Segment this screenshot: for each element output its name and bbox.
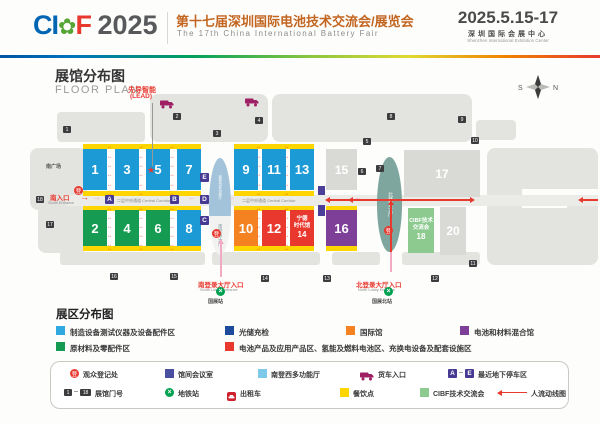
aisle-arrow-icon: ↔	[284, 216, 289, 221]
gate-11: 11	[469, 260, 477, 267]
zone-label: 光储充检	[239, 327, 269, 338]
hall-14-label-line: 14	[298, 230, 307, 240]
hall-1: 1	[83, 149, 107, 190]
hall-2: 2	[83, 210, 107, 246]
svg-text:S: S	[518, 85, 523, 92]
aisle-arrow-icon: ↔	[107, 207, 112, 212]
aisle-arrow-icon: ↔	[139, 183, 144, 188]
zone-label: 国际馆	[360, 327, 383, 338]
aisle-arrow-icon: ↔	[256, 155, 261, 160]
gate-10: 10	[471, 137, 479, 144]
aisle-arrow-icon: ↔	[170, 164, 175, 169]
aisle-arrow-icon: ↔	[256, 183, 261, 188]
flow-arrowhead-left	[578, 197, 583, 203]
gate-12: 12	[431, 275, 439, 282]
lead-pointer-line	[152, 103, 153, 166]
cibf-floorplan-page: CI✿F 2025 第十七届深圳国际电池技术交流会/展览会 The 17th C…	[0, 0, 600, 424]
hall-13: 13	[290, 149, 314, 190]
aisle-arrow-icon: ↔	[170, 173, 175, 178]
aisle-arrow-icon: ↔	[256, 225, 261, 230]
cibf-logo: CI✿F 2025	[33, 10, 158, 41]
zone-swatch	[225, 326, 234, 335]
truck-icon	[245, 97, 259, 107]
aisle-arrow-icon: ↔	[170, 145, 175, 150]
hall-17: 17	[404, 150, 480, 197]
gate-2: 2	[173, 113, 181, 120]
corridor-label-east: 二层中央通道 Central Corridor	[242, 198, 296, 204]
svg-text:N: N	[553, 85, 558, 92]
aisle-arrow-icon: ↔	[170, 225, 175, 230]
map-key-box	[50, 361, 569, 409]
flow-line-vertical	[390, 252, 392, 272]
gate-7: 7	[376, 165, 384, 172]
aisle-arrow-icon: ↔	[107, 247, 112, 252]
hall-yellow-strip	[234, 246, 314, 251]
aisle-arrow-icon: ↔	[284, 145, 289, 150]
building-shape	[332, 252, 380, 265]
flow-arrowhead-left	[348, 197, 353, 203]
hall-16: 16	[326, 210, 357, 246]
aisle-arrow-icon: ↔	[170, 192, 175, 197]
gate-6: 6	[358, 168, 366, 175]
gate-8: 8	[387, 113, 395, 120]
hall-14: 宁德时代馆14	[290, 210, 314, 246]
registration-icon: 登	[212, 229, 221, 238]
aisle-arrow-icon: ↔	[107, 192, 112, 197]
hall-9: 9	[234, 149, 258, 190]
flow-arrowhead-left	[325, 197, 330, 203]
aisle-arrow-icon: ↔	[139, 192, 144, 197]
aisle-arrow-icon: ↔	[139, 145, 144, 150]
hall-18-label-line: 交流会	[413, 225, 430, 232]
zone-label: 电池和材料混合馆	[474, 327, 534, 338]
hall-18-label-line: 18	[417, 232, 426, 242]
flow-line-vertical	[220, 243, 222, 277]
flow-arrow-icon: ←	[188, 194, 196, 202]
aisle-arrow-icon: ↔	[170, 183, 175, 188]
aisle-arrow-icon: ↔	[170, 234, 175, 239]
south-plaza-label: 南广场	[46, 163, 61, 170]
meeting-room-block	[318, 205, 325, 216]
hall-4: 4	[115, 210, 139, 246]
hall-yellow-strip	[326, 246, 357, 251]
gate-17: 17	[46, 221, 54, 228]
logo-ci: CI	[33, 10, 58, 40]
aisle-arrow-icon: ↔	[170, 155, 175, 160]
gate-16: 16	[110, 273, 118, 280]
aisle-arrow-icon: ↔	[139, 216, 144, 221]
aisle-arrow-icon: ↔	[284, 183, 289, 188]
aisle-arrow-icon: ↔	[170, 247, 175, 252]
aisle-arrow-icon: ↔	[256, 145, 261, 150]
parking-marker-C: C	[200, 216, 209, 225]
aisle-arrow-icon: ↔	[256, 192, 261, 197]
flow-arrow-icon: →	[92, 193, 101, 202]
aisle-arrow-icon: ↔	[107, 145, 112, 150]
gate-1: 1	[63, 126, 71, 133]
flow-arrowhead-up	[218, 239, 224, 244]
metro-station-icon: ×	[384, 287, 393, 296]
aisle-arrow-icon: ↔	[170, 207, 175, 212]
aisle-arrow-icon: ↔	[107, 155, 112, 160]
hall-15: 15	[326, 149, 357, 190]
hall-11: 11	[262, 149, 286, 190]
logo-flower-icon: ✿	[58, 14, 75, 39]
flow-arrow-icon: →	[80, 193, 89, 202]
aisle-arrow-icon: ↔	[256, 164, 261, 169]
logo-f: F	[75, 10, 91, 40]
aisle-arrow-icon: ↔	[284, 225, 289, 230]
metro-station-label-north: 国展北站	[372, 298, 392, 305]
gate-9: 9	[458, 116, 466, 123]
aisle-arrow-icon: ↔	[107, 216, 112, 221]
gate-4: 4	[255, 117, 263, 124]
aisle-arrow-icon: ↔	[139, 155, 144, 160]
metro-station-icon: ×	[216, 287, 225, 296]
south-lobby-multifunction-label: 南登西多功能厅	[209, 158, 231, 216]
aisle-arrow-icon: ↔	[284, 173, 289, 178]
parking-marker-D: D	[200, 195, 209, 204]
building-shape	[272, 94, 472, 142]
aisle-arrow-icon: ↔	[256, 207, 261, 212]
gate-14: 14	[261, 275, 269, 282]
zone-swatch	[346, 326, 355, 335]
metro-station-label-south: 国展站	[208, 298, 223, 305]
hall-20: 20	[440, 207, 466, 255]
aisle-arrow-icon: ↔	[170, 216, 175, 221]
lead-star-icon: ★	[147, 165, 155, 176]
fair-title-en: The 17th China International Battery Fai…	[177, 29, 379, 38]
aisle-arrow-icon: ↔	[139, 207, 144, 212]
corridor-label-west: 二层中央通道 Central Corridor	[117, 198, 171, 204]
aisle-arrow-icon: ↔	[139, 247, 144, 252]
zone-label: 制造设备测试仪器及设备配件区	[70, 327, 175, 338]
flow-arrowhead-right	[470, 197, 475, 203]
compass: SN	[516, 74, 560, 100]
hall-18: CIBF技术交流会18	[408, 208, 434, 253]
hall-10: 10	[234, 210, 258, 246]
aisle-arrow-icon: ↔	[256, 173, 261, 178]
truck-icon	[160, 99, 174, 109]
aisle-arrow-icon: ↔	[107, 173, 112, 178]
aisle-arrow-icon: ↔	[256, 216, 261, 221]
aisle-arrow-icon: ↔	[284, 247, 289, 252]
venue-en: Shenzhen International Exhibition Center	[452, 38, 564, 43]
aisle-arrow-icon: ↔	[139, 173, 144, 178]
hall-3: 3	[115, 149, 139, 190]
flow-arrow-icon: ←	[228, 194, 236, 202]
zone-label: 电池产品及应用产品区、氢能及燃料电池区、充换电设备及配套设施区	[239, 343, 472, 354]
gate-13: 13	[323, 275, 331, 282]
aisle-arrow-icon: ↔	[256, 234, 261, 239]
aisle-arrow-icon: ↔	[107, 225, 112, 230]
aisle-arrow-icon: ↔	[107, 164, 112, 169]
aisle-arrow-icon: ↔	[256, 247, 261, 252]
zones-legend-title: 展区分布图	[56, 306, 114, 322]
truck-entrance-icon	[160, 96, 174, 114]
hall-12: 12	[262, 210, 286, 246]
flow-arrowhead-up	[388, 200, 394, 205]
zone-label: 原材料及零配件区	[70, 343, 130, 354]
aisle-arrow-icon: ↔	[284, 207, 289, 212]
meeting-room-block	[318, 186, 325, 195]
zone-swatch	[225, 342, 234, 351]
zone-swatch	[56, 342, 65, 351]
hall-8: 8	[177, 210, 201, 246]
south-entrance-label-en: South Entrance	[48, 201, 74, 205]
gate-3: 3	[213, 130, 221, 137]
flow-line-horizontal	[583, 199, 598, 201]
aisle-arrow-icon: ↔	[139, 225, 144, 230]
logo-year: 2025	[97, 10, 157, 40]
hall-14-label-line: 宁德	[296, 216, 307, 223]
hall-14-label-line: 时代馆	[294, 223, 311, 230]
hall-6: 6	[146, 210, 170, 246]
gate-15: 15	[170, 273, 178, 280]
aisle-arrow-icon: ↔	[284, 192, 289, 197]
fair-title-cn: 第十七届深圳国际电池技术交流会/展览会	[176, 11, 414, 30]
aisle-arrow-icon: ↔	[284, 234, 289, 239]
parking-marker-E: E	[200, 173, 209, 182]
floor-plan: 1357911131524681012宁德时代馆141617CIBF技术交流会1…	[0, 60, 600, 305]
gate-5: 5	[363, 138, 371, 145]
zone-swatch	[460, 326, 469, 335]
aisle-arrow-icon: ↔	[139, 234, 144, 239]
aisle-arrow-icon: ↔	[284, 155, 289, 160]
aisle-arrow-icon: ↔	[107, 234, 112, 239]
building-shape	[60, 252, 205, 265]
fair-dates: 2025.5.15-17	[452, 8, 564, 28]
compass-icon: SN	[516, 74, 560, 100]
hall-7: 7	[177, 149, 201, 190]
hall-yellow-strip	[234, 144, 314, 149]
aisle-arrow-icon: ↔	[139, 164, 144, 169]
truck-entrance-icon	[245, 94, 259, 112]
lead-label-en: (LEAD)	[130, 93, 152, 100]
header-divider	[167, 12, 168, 44]
aisle-arrow-icon: ↔	[284, 164, 289, 169]
registration-icon: 登	[384, 226, 393, 235]
building-shape	[476, 120, 516, 140]
hall-yellow-strip	[234, 191, 314, 196]
header-gradient-bar	[0, 55, 600, 58]
gate-18: 18	[36, 196, 44, 203]
building-shape	[38, 205, 87, 253]
aisle-arrow-icon: ↔	[107, 183, 112, 188]
zone-swatch	[56, 326, 65, 335]
